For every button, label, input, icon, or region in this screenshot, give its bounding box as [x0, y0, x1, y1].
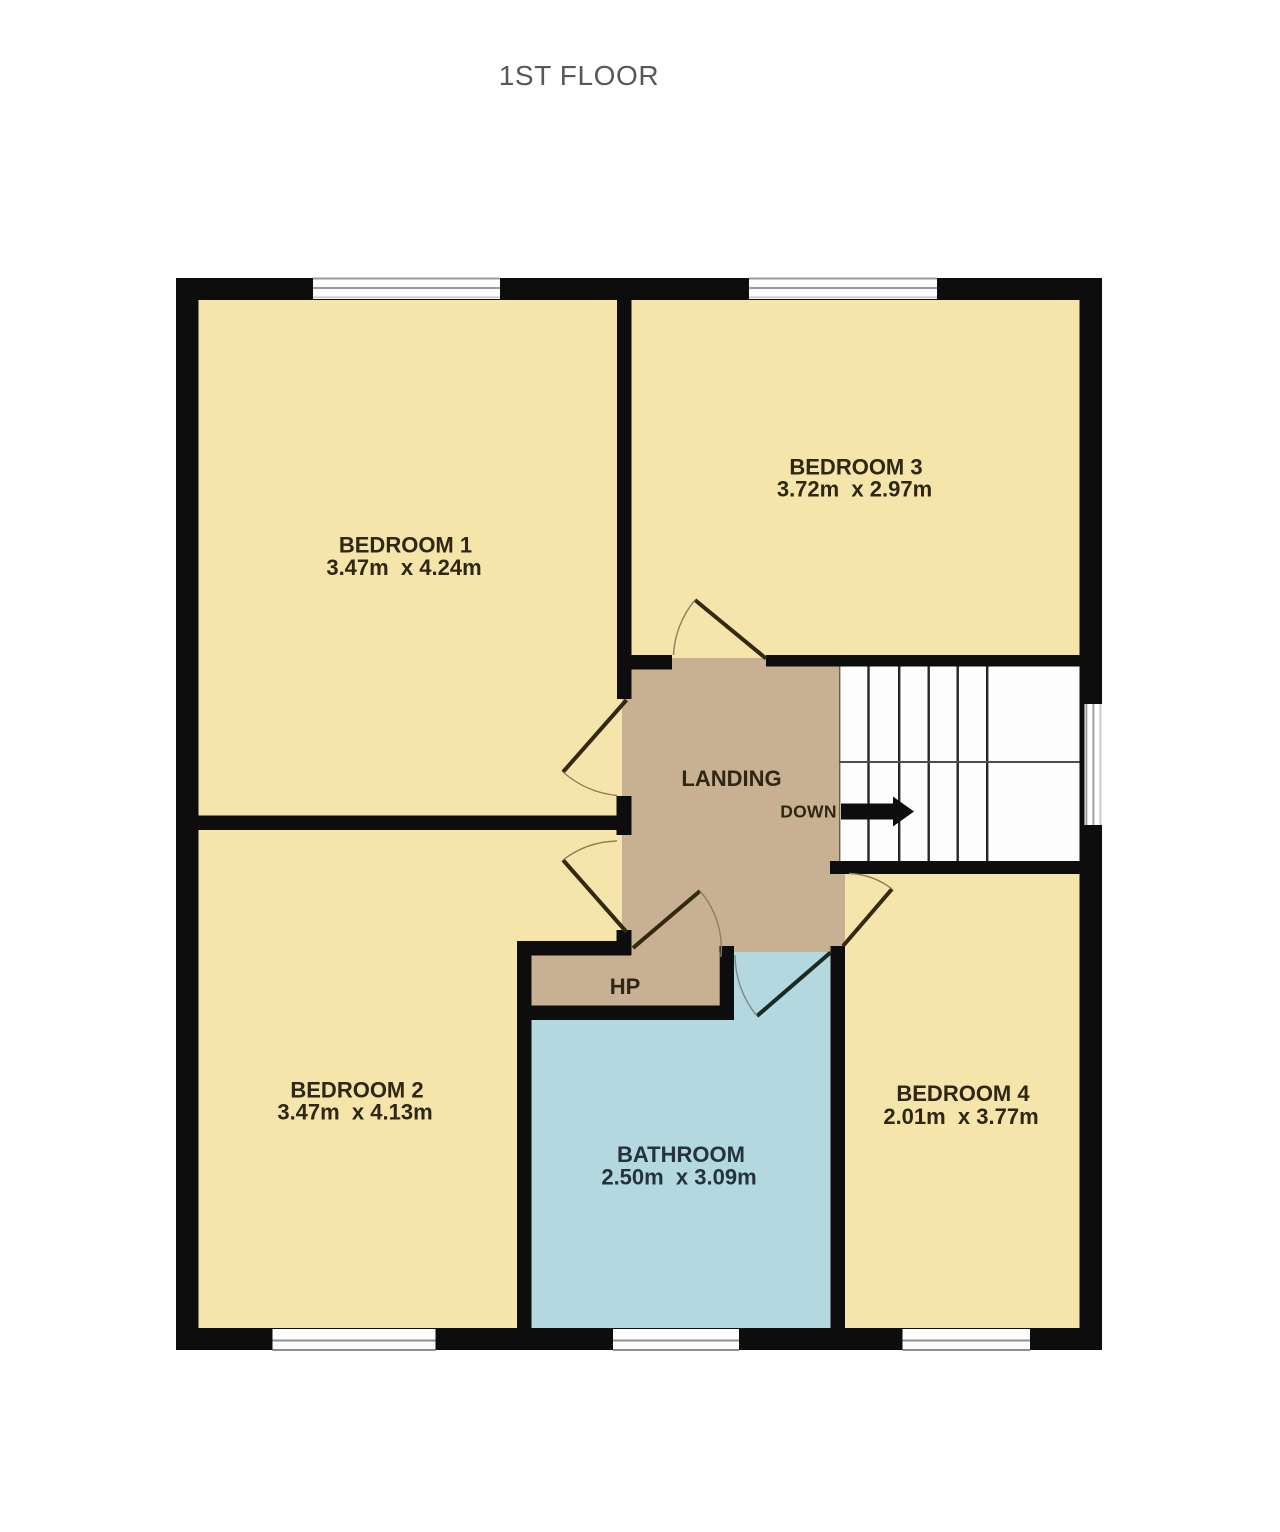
svg-text:2.50m x 3.09m: 2.50m x 3.09m	[601, 1165, 756, 1190]
svg-text:BEDROOM 1: BEDROOM 1	[339, 533, 472, 558]
svg-text:BEDROOM 4: BEDROOM 4	[896, 1081, 1030, 1106]
svg-text:BATHROOM: BATHROOM	[617, 1142, 745, 1167]
svg-text:3.47m x 4.24m: 3.47m x 4.24m	[326, 555, 481, 580]
svg-text:3.72m x 2.97m: 3.72m x 2.97m	[777, 476, 932, 501]
svg-text:1ST FLOOR: 1ST FLOOR	[499, 60, 659, 91]
svg-text:3.47m x 4.13m: 3.47m x 4.13m	[277, 1100, 432, 1125]
svg-text:2.01m x 3.77m: 2.01m x 3.77m	[883, 1104, 1038, 1129]
svg-text:LANDING: LANDING	[681, 766, 781, 791]
svg-text:DOWN: DOWN	[780, 802, 837, 822]
svg-text:HP: HP	[610, 974, 641, 999]
